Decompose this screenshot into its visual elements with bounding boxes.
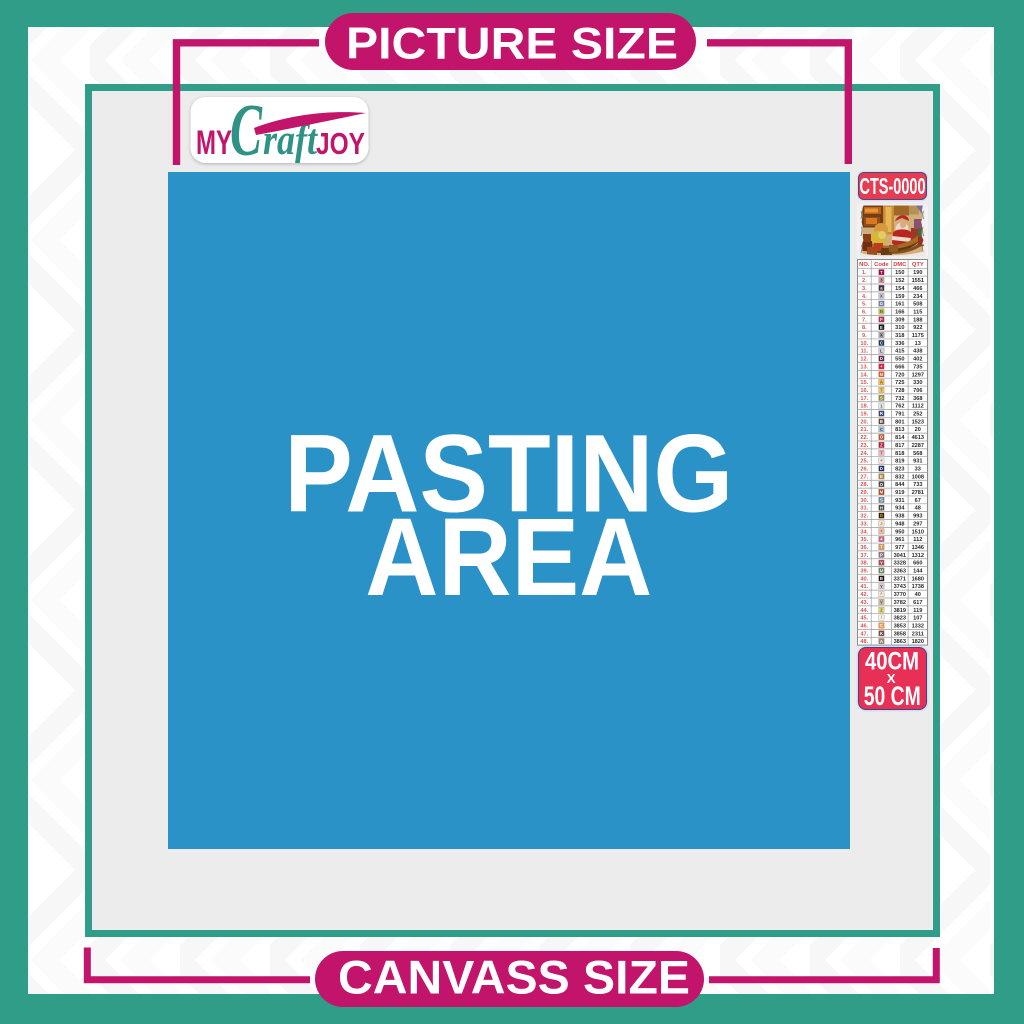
svg-text:3858: 3858 xyxy=(894,631,906,637)
svg-text:JOY: JOY xyxy=(316,126,365,161)
svg-text:617: 617 xyxy=(913,600,922,606)
svg-text:154: 154 xyxy=(895,286,905,292)
svg-text:3853: 3853 xyxy=(894,623,906,629)
svg-text:N: N xyxy=(880,309,883,314)
svg-text:67: 67 xyxy=(915,498,921,504)
svg-text:46.: 46. xyxy=(860,623,868,629)
svg-text:38.: 38. xyxy=(860,561,868,567)
svg-text:318: 318 xyxy=(895,333,904,339)
svg-text:N: N xyxy=(880,372,883,377)
svg-text:3782: 3782 xyxy=(894,600,906,606)
svg-text:961: 961 xyxy=(895,537,904,543)
svg-text:43.: 43. xyxy=(860,600,868,606)
svg-text:CANVASS SIZE: CANVASS SIZE xyxy=(338,951,690,1003)
svg-text:107: 107 xyxy=(913,616,922,622)
svg-text:G: G xyxy=(880,513,883,518)
svg-text:42.: 42. xyxy=(860,592,868,598)
svg-text:QTY: QTY xyxy=(912,262,924,268)
svg-text:19.: 19. xyxy=(860,412,868,418)
svg-text:919: 919 xyxy=(895,490,904,496)
svg-text:1738: 1738 xyxy=(912,584,924,590)
svg-text:297: 297 xyxy=(913,521,922,527)
svg-text:Code: Code xyxy=(874,262,889,268)
svg-text:D: D xyxy=(880,466,883,471)
svg-text:29.: 29. xyxy=(860,490,868,496)
svg-text:B: B xyxy=(880,419,883,424)
svg-text:3770: 3770 xyxy=(894,592,906,598)
svg-text:161: 161 xyxy=(895,302,904,308)
svg-text:660: 660 xyxy=(913,561,922,567)
svg-text:15.: 15. xyxy=(860,380,868,386)
svg-text:550: 550 xyxy=(895,357,904,363)
svg-text:NO.: NO. xyxy=(859,262,870,268)
svg-text:25.: 25. xyxy=(860,459,868,465)
svg-text:4.: 4. xyxy=(862,294,867,300)
svg-text:336: 336 xyxy=(895,341,904,347)
svg-text:45.: 45. xyxy=(860,616,868,622)
svg-text:931: 931 xyxy=(913,459,922,465)
svg-text:32.: 32. xyxy=(860,514,868,520)
svg-text:938: 938 xyxy=(895,514,904,520)
svg-text:735: 735 xyxy=(913,364,922,370)
svg-text:1551: 1551 xyxy=(912,278,924,284)
svg-text:13: 13 xyxy=(915,341,921,347)
svg-text:6.: 6. xyxy=(862,309,867,315)
svg-text:28.: 28. xyxy=(860,482,868,488)
svg-text:F: F xyxy=(880,317,883,322)
svg-text:1523: 1523 xyxy=(912,419,924,425)
svg-text:C: C xyxy=(880,340,883,345)
svg-text:2287: 2287 xyxy=(912,443,924,449)
svg-text:1680: 1680 xyxy=(912,576,924,582)
svg-text:3819: 3819 xyxy=(894,608,906,614)
svg-text:438: 438 xyxy=(913,349,922,355)
svg-text:27.: 27. xyxy=(860,474,868,480)
svg-text:190: 190 xyxy=(913,270,922,276)
svg-text:M: M xyxy=(880,490,884,495)
svg-text:188: 188 xyxy=(913,317,922,323)
svg-text:801: 801 xyxy=(895,419,904,425)
svg-text:Y: Y xyxy=(880,560,883,565)
svg-text:152: 152 xyxy=(895,278,904,284)
svg-text:3743: 3743 xyxy=(894,584,906,590)
svg-text:3041: 3041 xyxy=(894,553,906,559)
svg-text:MY: MY xyxy=(196,124,232,162)
svg-text:T: T xyxy=(880,270,883,275)
svg-text:1.: 1. xyxy=(862,270,867,276)
svg-text:35.: 35. xyxy=(860,537,868,543)
svg-text:115: 115 xyxy=(913,309,922,315)
svg-text:814: 814 xyxy=(895,435,905,441)
svg-text:16.: 16. xyxy=(860,388,868,394)
svg-text:22.: 22. xyxy=(860,435,868,441)
svg-text:5.: 5. xyxy=(862,302,867,308)
svg-text:P: P xyxy=(880,552,883,557)
svg-text:K: K xyxy=(880,631,883,636)
svg-text:B: B xyxy=(880,576,883,581)
svg-text:24.: 24. xyxy=(860,451,868,457)
svg-text:40: 40 xyxy=(915,592,921,598)
svg-text:12.: 12. xyxy=(860,357,868,363)
svg-text:9.: 9. xyxy=(862,333,867,339)
svg-text:728: 728 xyxy=(895,388,904,394)
svg-text:159: 159 xyxy=(895,294,904,300)
svg-text:330: 330 xyxy=(913,380,922,386)
svg-text:AREA: AREA xyxy=(365,496,652,619)
svg-text:E: E xyxy=(880,474,883,479)
svg-text:823: 823 xyxy=(895,466,904,472)
svg-text:3823: 3823 xyxy=(894,616,906,622)
svg-text:166: 166 xyxy=(895,309,904,315)
svg-text:3863: 3863 xyxy=(894,639,906,645)
svg-text:234: 234 xyxy=(913,294,923,300)
svg-text:26.: 26. xyxy=(860,466,868,472)
svg-text:1008: 1008 xyxy=(912,474,924,480)
svg-text:7.: 7. xyxy=(862,317,867,323)
svg-text:1175: 1175 xyxy=(912,333,924,339)
svg-text:39.: 39. xyxy=(860,569,868,575)
svg-text:977: 977 xyxy=(895,545,904,551)
svg-text:2.: 2. xyxy=(862,278,867,284)
svg-text:993: 993 xyxy=(913,514,922,520)
svg-text:732: 732 xyxy=(895,396,904,402)
svg-text:36.: 36. xyxy=(860,545,868,551)
svg-text:1332: 1332 xyxy=(912,623,924,629)
svg-text:48: 48 xyxy=(915,506,921,512)
svg-text:1112: 1112 xyxy=(912,404,924,410)
svg-text:13.: 13. xyxy=(860,364,868,370)
svg-text:2781: 2781 xyxy=(912,490,924,496)
svg-text:813: 813 xyxy=(895,427,904,433)
svg-text:34.: 34. xyxy=(860,529,868,535)
svg-text:252: 252 xyxy=(913,412,922,418)
svg-text:1510: 1510 xyxy=(912,529,924,535)
svg-text:844: 844 xyxy=(895,482,905,488)
svg-text:720: 720 xyxy=(895,372,904,378)
svg-text:1820: 1820 xyxy=(912,639,924,645)
svg-text:20: 20 xyxy=(915,427,921,433)
svg-text:922: 922 xyxy=(913,325,922,331)
svg-text:33: 33 xyxy=(915,466,921,472)
svg-text:48.: 48. xyxy=(860,639,868,645)
svg-text:368: 368 xyxy=(913,396,922,402)
svg-text:T: T xyxy=(880,545,883,550)
svg-text:14.: 14. xyxy=(860,372,868,378)
svg-text:3.: 3. xyxy=(862,286,867,292)
svg-text:112: 112 xyxy=(913,537,922,543)
svg-text:PICTURE SIZE: PICTURE SIZE xyxy=(346,20,678,69)
svg-text:706: 706 xyxy=(913,388,922,394)
svg-text:17.: 17. xyxy=(860,396,868,402)
svg-text:30.: 30. xyxy=(860,498,868,504)
svg-text:3363: 3363 xyxy=(894,569,906,575)
svg-text:10.: 10. xyxy=(860,341,868,347)
svg-text:310: 310 xyxy=(895,325,904,331)
svg-text:40.: 40. xyxy=(860,576,868,582)
svg-text:33.: 33. xyxy=(860,521,868,527)
svg-text:119: 119 xyxy=(913,608,922,614)
svg-text:3371: 3371 xyxy=(894,576,906,582)
svg-text:CTS-0000: CTS-0000 xyxy=(860,172,926,198)
svg-text:L: L xyxy=(880,348,883,353)
svg-text:568: 568 xyxy=(913,451,922,457)
svg-text:C: C xyxy=(880,623,883,628)
svg-text:50 CM: 50 CM xyxy=(864,681,921,710)
svg-text:1297: 1297 xyxy=(912,372,924,378)
svg-text:934: 934 xyxy=(895,506,905,512)
svg-text:G: G xyxy=(880,301,883,306)
svg-text:725: 725 xyxy=(895,380,904,386)
svg-text:1346: 1346 xyxy=(912,545,924,551)
svg-text:S: S xyxy=(880,395,883,400)
svg-text:47.: 47. xyxy=(860,631,868,637)
svg-text:733: 733 xyxy=(913,482,922,488)
svg-text:1312: 1312 xyxy=(912,553,924,559)
svg-text:666: 666 xyxy=(895,364,904,370)
svg-text:466: 466 xyxy=(913,286,922,292)
svg-text:144: 144 xyxy=(913,569,923,575)
svg-text:3328: 3328 xyxy=(894,561,906,567)
svg-text:415: 415 xyxy=(895,349,904,355)
svg-text:762: 762 xyxy=(895,404,904,410)
svg-text:508: 508 xyxy=(913,302,922,308)
svg-text:E: E xyxy=(880,325,883,330)
svg-text:950: 950 xyxy=(895,529,904,535)
svg-text:791: 791 xyxy=(895,412,904,418)
svg-text:832: 832 xyxy=(895,474,904,480)
svg-text:R: R xyxy=(880,411,883,416)
svg-text:S: S xyxy=(880,497,883,502)
svg-text:41.: 41. xyxy=(860,584,868,590)
svg-text:V: V xyxy=(880,600,883,605)
svg-text:C: C xyxy=(880,427,883,432)
svg-text:Y: Y xyxy=(880,584,883,589)
svg-text:21.: 21. xyxy=(860,427,868,433)
svg-text:37.: 37. xyxy=(860,553,868,559)
svg-text:A: A xyxy=(880,380,883,385)
svg-text:U: U xyxy=(880,568,883,573)
svg-text:2311: 2311 xyxy=(912,631,924,637)
svg-text:H: H xyxy=(880,505,883,510)
svg-text:402: 402 xyxy=(913,357,922,363)
svg-text:DMC: DMC xyxy=(893,262,907,268)
svg-text:11.: 11. xyxy=(861,349,869,355)
svg-text:23.: 23. xyxy=(860,443,868,449)
svg-text:8.: 8. xyxy=(862,325,867,331)
svg-text:D: D xyxy=(880,356,883,361)
svg-text:X: X xyxy=(880,293,883,298)
svg-text:819: 819 xyxy=(895,459,904,465)
svg-text:818: 818 xyxy=(895,451,904,457)
svg-text:309: 309 xyxy=(895,317,904,323)
svg-text:A: A xyxy=(880,639,883,644)
svg-text:31.: 31. xyxy=(860,506,868,512)
svg-text:4613: 4613 xyxy=(912,435,924,441)
svg-text:X: X xyxy=(880,333,883,338)
svg-text:20.: 20. xyxy=(860,419,868,425)
svg-text:931: 931 xyxy=(895,498,904,504)
svg-text:817: 817 xyxy=(895,443,904,449)
svg-text:Z: Z xyxy=(880,443,883,448)
svg-text:44.: 44. xyxy=(860,608,868,614)
svg-text:150: 150 xyxy=(895,270,904,276)
svg-text:948: 948 xyxy=(895,521,904,527)
svg-text:18.: 18. xyxy=(860,404,868,410)
